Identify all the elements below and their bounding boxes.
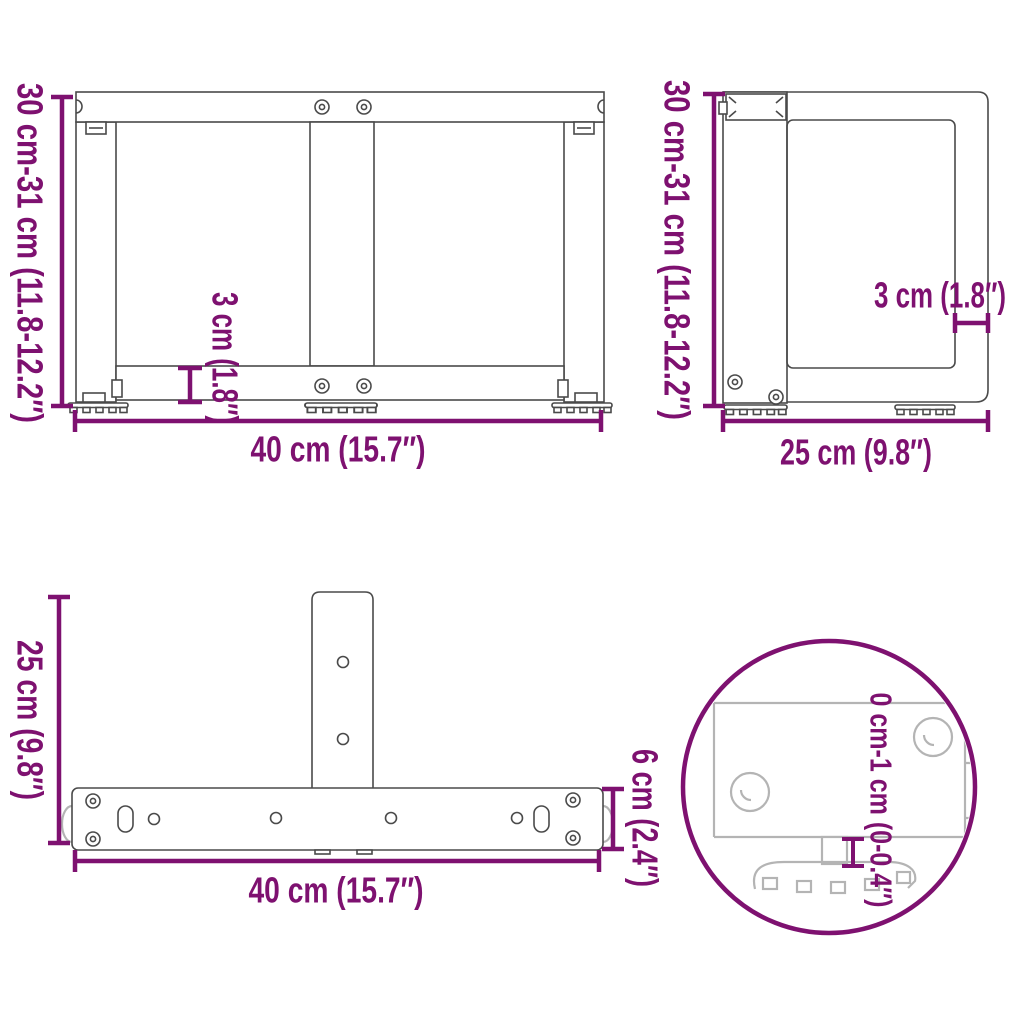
side-column [723, 92, 787, 403]
front-top-bar [76, 92, 604, 122]
top-depth-label: 25 cm (9.8″) [10, 640, 51, 800]
detail-adjust-label: 0 cm-1 cm (0-0.4″) [864, 693, 899, 908]
front-right-leg [564, 122, 604, 402]
side-height-label: 30 cm-31 cm (11.8-12.2″) [657, 80, 698, 420]
front-height-dimension [51, 97, 73, 406]
side-view: 30 cm-31 cm (11.8-12.2″) 25 cm (9.8″) 3 … [657, 80, 1007, 473]
foot-pad [305, 403, 377, 413]
screw-icon [914, 718, 952, 756]
front-height-label: 30 cm-31 cm (11.8-12.2″) [10, 83, 51, 423]
top-width-label: 40 cm (15.7″) [249, 870, 424, 911]
screw-icon [357, 100, 371, 114]
product-dimension-diagram: 30 cm-31 cm (11.8-12.2″) 40 cm (15.7″) 3… [0, 0, 1024, 1024]
screw-icon [566, 793, 580, 807]
screw-icon [769, 390, 783, 404]
top-bar [72, 788, 603, 850]
side-thickness-dimension [955, 313, 988, 333]
screw-icon [315, 100, 329, 114]
diagram-canvas: 30 cm-31 cm (11.8-12.2″) 40 cm (15.7″) 3… [0, 0, 1024, 1024]
side-top-clip [726, 94, 786, 120]
screw-icon [357, 379, 371, 393]
top-bar-width-dimension [602, 789, 624, 849]
side-thickness-label: 3 cm (1.8″) [874, 275, 1006, 316]
detail-view: 0 cm-1 cm (0-0.4″) [683, 641, 993, 933]
screw-icon [86, 832, 100, 846]
screw-icon [315, 379, 329, 393]
top-view: 25 cm (9.8″) 40 cm (15.7″) 6 cm (2.4″) [10, 592, 666, 911]
side-depth-label: 25 cm (9.8″) [780, 432, 932, 473]
screw-icon [86, 794, 100, 808]
front-bottom-rail [116, 366, 564, 400]
screw-icon [731, 773, 769, 811]
top-column-plate [312, 592, 373, 790]
detail-circle [683, 641, 975, 933]
screw-icon [566, 831, 580, 845]
foot-stem [822, 837, 847, 864]
front-thickness-label: 3 cm (1.8″) [205, 292, 246, 424]
front-view: 30 cm-31 cm (11.8-12.2″) 40 cm (15.7″) 3… [10, 83, 613, 470]
front-left-leg [76, 122, 116, 402]
foot-pad [895, 405, 955, 415]
screw-icon [728, 375, 742, 389]
side-inner-window [787, 120, 955, 368]
top-bar-width-label: 6 cm (2.4″) [625, 749, 666, 887]
side-height-dimension [703, 94, 725, 406]
foot-pad [724, 405, 787, 415]
front-width-label: 40 cm (15.7″) [251, 429, 426, 470]
front-column [310, 122, 374, 366]
